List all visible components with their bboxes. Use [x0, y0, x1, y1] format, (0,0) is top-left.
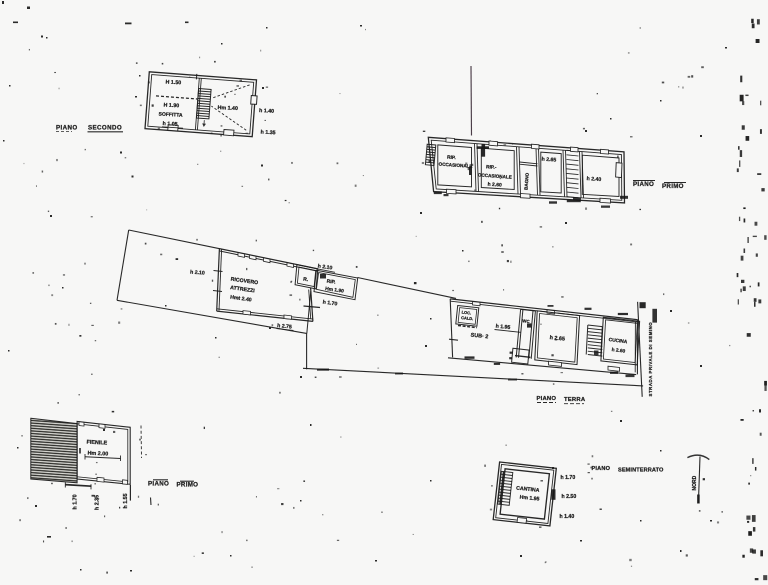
- svg-text:SEMINTERRATO: SEMINTERRATO: [618, 467, 664, 473]
- svg-text:h 2.60: h 2.60: [487, 182, 502, 189]
- svg-text:TERRA: TERRA: [564, 397, 586, 403]
- svg-text:FIENILE: FIENILE: [86, 440, 107, 447]
- svg-text:h 2.50: h 2.50: [562, 494, 577, 500]
- svg-text:PIANO: PIANO: [592, 466, 611, 472]
- svg-text:h 1.40: h 1.40: [560, 514, 575, 520]
- svg-text:SECONDO: SECONDO: [88, 125, 122, 132]
- svg-text:h 1.70: h 1.70: [73, 494, 79, 509]
- svg-text:h 2.40: h 2.40: [586, 176, 601, 183]
- svg-text:PRIMO: PRIMO: [662, 183, 684, 190]
- svg-text:PIANO: PIANO: [56, 125, 78, 132]
- svg-text:STRADA PRIVALE DI SEMINO: STRADA PRIVALE DI SEMINO: [648, 322, 653, 397]
- svg-text:h 2.35: h 2.35: [95, 495, 101, 510]
- svg-text:h 2.65: h 2.65: [541, 157, 556, 164]
- svg-text:Hm 1.40: Hm 1.40: [217, 105, 238, 112]
- svg-text:SOFFITTA: SOFFITTA: [158, 112, 183, 119]
- svg-text:PIANO: PIANO: [537, 396, 557, 402]
- svg-text:PRIMO: PRIMO: [177, 482, 199, 489]
- svg-text:h 1.40: h 1.40: [259, 108, 274, 115]
- svg-text:PIANO: PIANO: [633, 181, 654, 188]
- svg-text:Hm 2.00: Hm 2.00: [87, 451, 108, 458]
- svg-text:H 1.50: H 1.50: [165, 80, 181, 87]
- svg-text:RIP.: RIP.: [447, 155, 456, 162]
- svg-text:H 1.90: H 1.90: [163, 103, 179, 110]
- svg-text:h 1.55: h 1.55: [123, 493, 129, 508]
- svg-text:WC: WC: [522, 318, 530, 324]
- svg-text:NORD: NORD: [692, 475, 698, 490]
- svg-text:PIANO: PIANO: [148, 481, 169, 488]
- svg-text:RIP.-: RIP.-: [486, 164, 497, 171]
- svg-text:h 1.35: h 1.35: [260, 130, 275, 137]
- svg-text:h 1.70: h 1.70: [561, 475, 576, 481]
- svg-text:h 2.10: h 2.10: [190, 270, 205, 277]
